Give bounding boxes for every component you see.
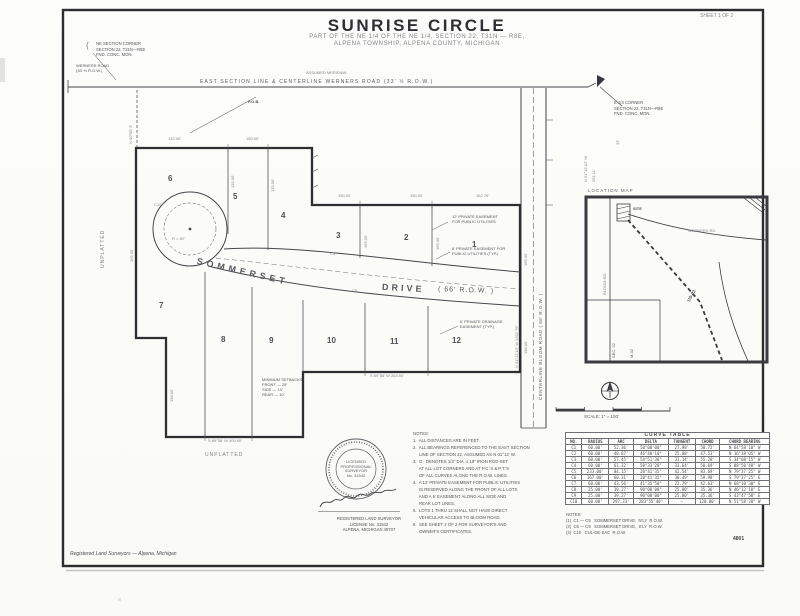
- street-name-drive: DRIVE: [382, 282, 425, 295]
- lot-number-3: 3: [336, 231, 340, 241]
- dim-label: 165.00': [130, 249, 135, 262]
- nw-corner-note-3: FND. CONC. MON.: [96, 52, 133, 57]
- curve-note-line: (3) C10 CUL-DE-SAC R.O.W.: [566, 530, 663, 536]
- north-arrow: [602, 381, 619, 400]
- inset-site-label: SITE: [633, 207, 642, 212]
- lot-number-4: 4: [281, 211, 285, 221]
- dim-label: S 89°58' W 264.00': [370, 374, 404, 379]
- section-line: [68, 53, 622, 147]
- dim-label: 150.00': [410, 194, 423, 199]
- scan-artifact: [0, 58, 5, 82]
- inset-m32-label: M-32: [630, 349, 635, 358]
- nw-corner-note-2: SECTION 22, T31N—R8E: [96, 47, 145, 52]
- dim-label: 165.00': [364, 235, 369, 248]
- bloom-road-name: CENTERLINE BLOOM ROAD ( 66' R.O.W. ): [538, 293, 543, 400]
- note-line: 4. A 12' PRIVATE EASEMENT FOR PUBLIC UTI…: [413, 479, 563, 486]
- unplatted-label-south: UNPLATTED: [205, 452, 243, 458]
- scan-artifact: [118, 598, 121, 601]
- bloom-road-tick-1: N 01°12'10" W: [584, 156, 589, 182]
- note-line: AT ALL LOT CORNERS AND AT P.C.'S & P.T.'…: [413, 465, 563, 472]
- note-line: 1. ALL DISTANCES ARE IN FEET.: [413, 437, 563, 444]
- cul-de-sac: [153, 192, 227, 266]
- surveyor-typed-block: REGISTERED LAND SURVEYOR LICENSE No. 315…: [314, 516, 424, 533]
- dim-label: 162.76': [476, 194, 489, 199]
- dim-label: 165.00': [436, 237, 441, 250]
- dim-label: 150.00': [338, 194, 351, 199]
- footer-sheet-code: 4801: [733, 536, 744, 542]
- setback-note-l4: REAR — 10': [262, 393, 285, 398]
- inset-sec-label: SEC. 22: [612, 343, 617, 358]
- note-line: VEHICULAR ACCESS TO BLOOM ROAD.: [413, 514, 563, 521]
- note-line: REAR LOT LINES.: [413, 500, 563, 507]
- inset-caption: LOCATION MAP: [588, 188, 634, 193]
- easement-note1-l2: FOR PUBLIC UTILITIES: [452, 220, 496, 225]
- note-line: 5. LOTS 1 THRU 12 SHALL NOT HAVE DIRECT: [413, 507, 563, 514]
- inset-road2-label: BLOOM RD.: [603, 273, 608, 295]
- seal-text: LICENSED PROFESSIONAL SURVEYOR No. 31542: [336, 460, 376, 478]
- lot-number-9: 9: [269, 336, 273, 346]
- note-line: 6. SEE SHEET 2 OF 2 FOR SURVEYOR'S AND: [413, 521, 563, 528]
- brace-glyph: {: [86, 41, 89, 51]
- dim-label: 198.00': [524, 341, 529, 354]
- sheet-number-note: SHEET 1 OF 2: [700, 13, 733, 19]
- curve-ref-c6: C6: [352, 289, 357, 294]
- lot-number-5: 5: [233, 192, 237, 202]
- bloom-road-tick-3: 33': [616, 140, 621, 145]
- dim-label: 132.00': [271, 179, 276, 192]
- plat-sheet: SUNRISE CIRCLE PART OF THE NE 1/4 OF THE…: [0, 0, 800, 616]
- lot-number-8: 8: [221, 335, 225, 345]
- easement-note3-l2: EASEMENT (TYP.): [460, 325, 494, 330]
- dim-label: 165.00': [524, 253, 529, 266]
- lot-number-11: 11: [390, 337, 398, 347]
- note-line: 3. O DENOTES 1/2" DIA. x 18" IRON ROD SE…: [413, 458, 563, 465]
- note-line: 2. ALL BEARINGS REFERENCED TO THE EAST S…: [413, 444, 563, 451]
- dim-label: N 00°05' E: [129, 125, 134, 144]
- lot-number-7: 7: [159, 301, 163, 311]
- general-notes: NOTES:1. ALL DISTANCES ARE IN FEET.2. AL…: [413, 430, 563, 535]
- culdesac-radius-label: R = 60': [172, 237, 185, 242]
- inset-road1-label: WERNERS RD.: [688, 229, 716, 234]
- bloom-road-bearing: N 01°12'10" W 1322.76': [515, 326, 520, 368]
- sheet-subtitle-2: ALPENA TOWNSHIP, ALPENA COUNTY, MICHIGAN: [247, 41, 587, 48]
- curve-ref-c5: C5: [330, 252, 335, 257]
- lot-number-10: 10: [327, 336, 336, 346]
- easement-note2-l2: PUBLIC UTILITIES (TYP.): [452, 252, 498, 257]
- note-line: OF ALL CURVES ALONG THE R.O.W. LINES.: [413, 472, 563, 479]
- nw-corner-note-1: NE SECTION CORNER: [96, 41, 141, 46]
- note-line: IS RESERVED ALONG THE FRONT OF ALL LOTS: [413, 486, 563, 493]
- scale-bar: [556, 407, 670, 411]
- unplatted-label-west: UNPLATTED: [100, 230, 106, 268]
- curve-row: C1060.00'297.33'283°55'40"—120.00'N 51°5…: [566, 499, 770, 505]
- meridian-note: ASSUMED MERIDIAN: [306, 71, 346, 76]
- pob-label: P.O.B.: [248, 100, 260, 105]
- curve-table: CURVE TABLE NO.RADIUSARCDELTATANGENTCHOR…: [565, 432, 770, 505]
- lot-number-6: 6: [168, 174, 172, 184]
- ne-corner-note-1: E 1/4 CORNER: [614, 100, 643, 105]
- ne-corner-note-2: SECTION 22, T31N—R8E: [614, 106, 663, 111]
- note-line: AND A 6' EASEMENT ALONG ALL SIDE AND: [413, 493, 563, 500]
- lot-number-2: 2: [404, 233, 408, 243]
- dim-label: 198.00': [170, 389, 175, 402]
- dim-label: 150.00': [246, 137, 259, 142]
- seal-line: No. 31542: [336, 474, 376, 479]
- dim-label: 132.00': [231, 175, 236, 188]
- curve-ref-c10: C10: [154, 203, 161, 208]
- werners-road-label-2: (33' ½ R.O.W.): [76, 69, 102, 74]
- note-line: NOTES:: [413, 430, 563, 437]
- note-line: LINE OF SECTION 22, ASSUMED AS N 01°12' …: [413, 451, 563, 458]
- dim-label: 132.00': [168, 137, 181, 142]
- section-line-label: EAST SECTION LINE & CENTERLINE WERNERS R…: [200, 79, 434, 85]
- dim-label: S 89°58' W 300.00': [208, 439, 242, 444]
- curve-table-notes: NOTES:(1) C1 — C5 SOMMERSET DRIVE, N'LY …: [566, 512, 663, 536]
- inset-map: [586, 197, 767, 362]
- bloom-road-tick-2: 261.11': [592, 169, 597, 182]
- surveyor-line: ALPENA, MICHIGAN 49707: [314, 527, 424, 533]
- note-line: OWNER'S CERTIFICATES.: [413, 528, 563, 535]
- scale-label: SCALE: 1" = 100': [584, 414, 619, 419]
- ne-corner-note-3: FND. CONC. MON.: [614, 111, 651, 116]
- footer-firm-name: Registered Land Surveyors — Alpena, Mich…: [70, 551, 177, 557]
- lot-number-12: 12: [452, 336, 461, 346]
- signature: [318, 489, 400, 512]
